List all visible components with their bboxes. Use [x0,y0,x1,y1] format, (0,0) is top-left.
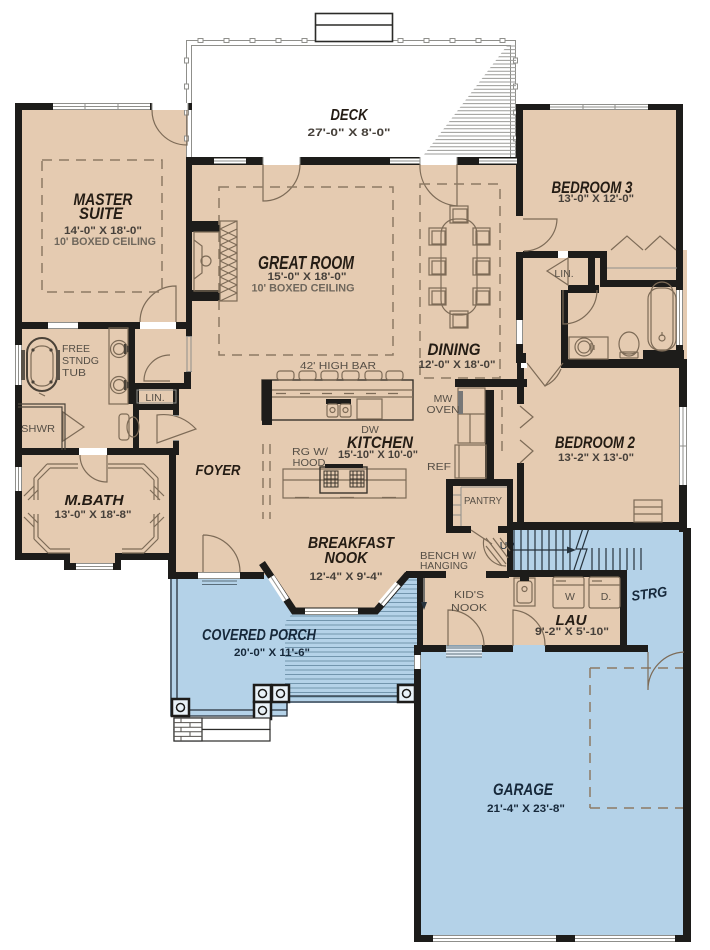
svg-text:20'-0" X 11'-6": 20'-0" X 11'-6" [234,647,310,659]
svg-text:M.BATH: M.BATH [65,492,125,509]
svg-text:13'-0" X 12'-0": 13'-0" X 12'-0" [558,193,634,205]
svg-text:TUB: TUB [62,367,86,379]
svg-text:13'-2" X 13'-0": 13'-2" X 13'-0" [558,452,634,464]
svg-text:15'-0" X 18'-0": 15'-0" X 18'-0" [268,271,347,283]
svg-text:GREAT ROOM: GREAT ROOM [258,253,355,273]
svg-text:PANTRY: PANTRY [464,495,502,507]
svg-text:42' HIGH BAR: 42' HIGH BAR [300,360,376,372]
svg-text:NOOK: NOOK [451,602,487,614]
svg-text:10' BOXED CEILING: 10' BOXED CEILING [252,283,355,295]
svg-text:STNDG: STNDG [62,355,99,367]
svg-text:10' BOXED CEILING: 10' BOXED CEILING [54,236,156,248]
svg-text:DECK: DECK [331,107,369,124]
svg-text:12'-4" X 9'-4": 12'-4" X 9'-4" [310,571,383,583]
svg-text:OVEN: OVEN [427,404,460,416]
svg-text:HANGING: HANGING [420,560,468,572]
svg-text:12'-0" X 18'-0": 12'-0" X 18'-0" [419,359,496,371]
svg-text:W: W [565,591,575,603]
svg-text:DINING: DINING [428,340,481,359]
svg-text:LIN.: LIN. [554,268,573,280]
svg-text:NOOK: NOOK [325,550,369,567]
svg-text:COVERED PORCH: COVERED PORCH [202,627,317,644]
svg-text:DW: DW [361,424,379,436]
svg-text:27'-0" X 8'-0": 27'-0" X 8'-0" [308,127,391,139]
svg-text:GARAGE: GARAGE [493,780,554,799]
svg-text:9'-2" X 5'-10": 9'-2" X 5'-10" [535,626,609,638]
svg-text:15'-10" X 10'-0": 15'-10" X 10'-0" [338,449,418,461]
svg-text:FOYER: FOYER [196,462,241,479]
svg-text:21'-4" X 23'-8": 21'-4" X 23'-8" [487,803,565,815]
svg-text:D.: D. [601,591,612,603]
svg-text:SUITE: SUITE [79,204,124,223]
svg-text:KID'S: KID'S [454,589,484,601]
svg-text:SHWR: SHWR [21,423,55,435]
svg-text:BEDROOM 2: BEDROOM 2 [555,434,635,452]
svg-text:LIN.: LIN. [145,392,164,404]
svg-text:13'-0" X 18'-8": 13'-0" X 18'-8" [55,509,132,521]
svg-text:HOOD: HOOD [293,457,326,469]
svg-text:REF: REF [427,461,451,473]
svg-text:FREE: FREE [62,343,90,355]
